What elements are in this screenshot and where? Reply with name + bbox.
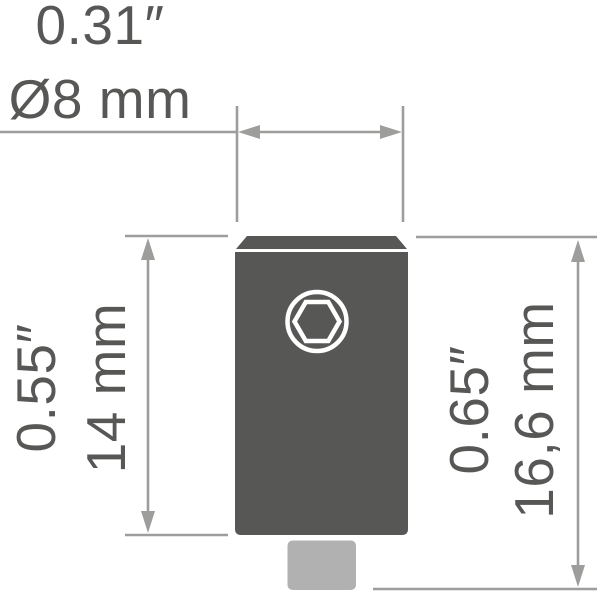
arrowhead-left-icon <box>238 125 260 139</box>
top-dimension-label: 0.31″ Ø8 mm <box>0 0 204 136</box>
dim-right-inches: 0.65″ <box>437 260 502 560</box>
adapter-shaft <box>288 541 357 591</box>
left-dimension-label: 0.55″ 14 mm <box>1 238 141 538</box>
arrowhead-down-icon <box>141 511 155 533</box>
dim-top-metric: Ø8 mm <box>0 62 204 136</box>
dimension-drawing-canvas: 0.31″ Ø8 mm 0.55″ 14 mm 0.65″ 16,6 mm <box>0 0 600 600</box>
dim-right-metric: 16,6 mm <box>502 260 567 560</box>
arrowhead-right-icon <box>380 125 402 139</box>
dim-left-inches: 0.55″ <box>1 238 71 538</box>
arrowhead-down-icon <box>571 565 585 587</box>
adapter-chamfer-top <box>236 236 407 249</box>
adapter-part <box>235 236 408 590</box>
dim-left-metric: 14 mm <box>71 238 141 538</box>
dim-top-inches: 0.31″ <box>0 0 204 62</box>
right-dimension-label: 0.65″ 16,6 mm <box>437 260 567 560</box>
arrowhead-up-icon <box>571 240 585 262</box>
arrowhead-up-icon <box>141 238 155 260</box>
